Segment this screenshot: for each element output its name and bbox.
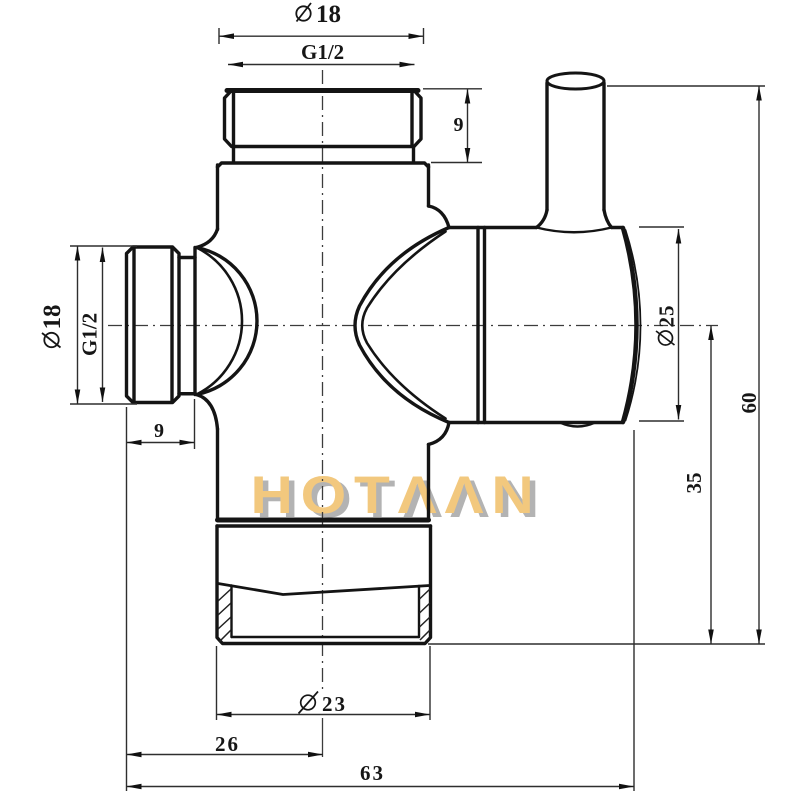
svg-text:18: 18 [316, 1, 341, 28]
svg-text:18: 18 [39, 305, 66, 330]
svg-text:G1/2: G1/2 [78, 313, 102, 356]
svg-text:HOTΛΛN: HOTΛΛN [251, 466, 542, 525]
svg-text:26: 26 [215, 732, 240, 756]
svg-text:35: 35 [682, 473, 706, 494]
svg-text:63: 63 [360, 761, 385, 785]
svg-text:G1/2: G1/2 [301, 40, 344, 64]
svg-text:60: 60 [737, 393, 761, 414]
svg-text:23: 23 [322, 692, 347, 716]
svg-text:25: 25 [655, 305, 679, 328]
svg-text:9: 9 [454, 114, 464, 136]
svg-text:9: 9 [154, 420, 164, 442]
